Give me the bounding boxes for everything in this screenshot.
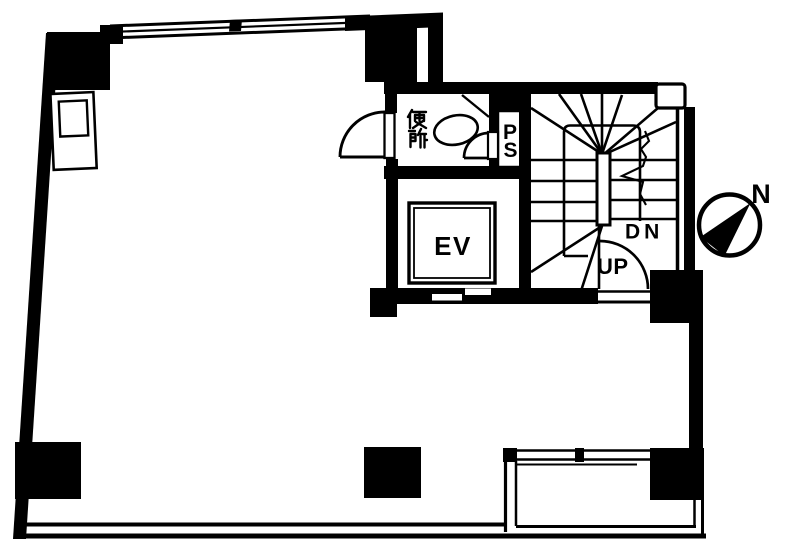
svg-text:N: N (751, 179, 771, 209)
svg-text:DN: DN (625, 221, 663, 244)
svg-text:UP: UP (597, 254, 629, 279)
svg-text:S: S (503, 139, 517, 162)
svg-text:EV: EV (434, 231, 472, 261)
